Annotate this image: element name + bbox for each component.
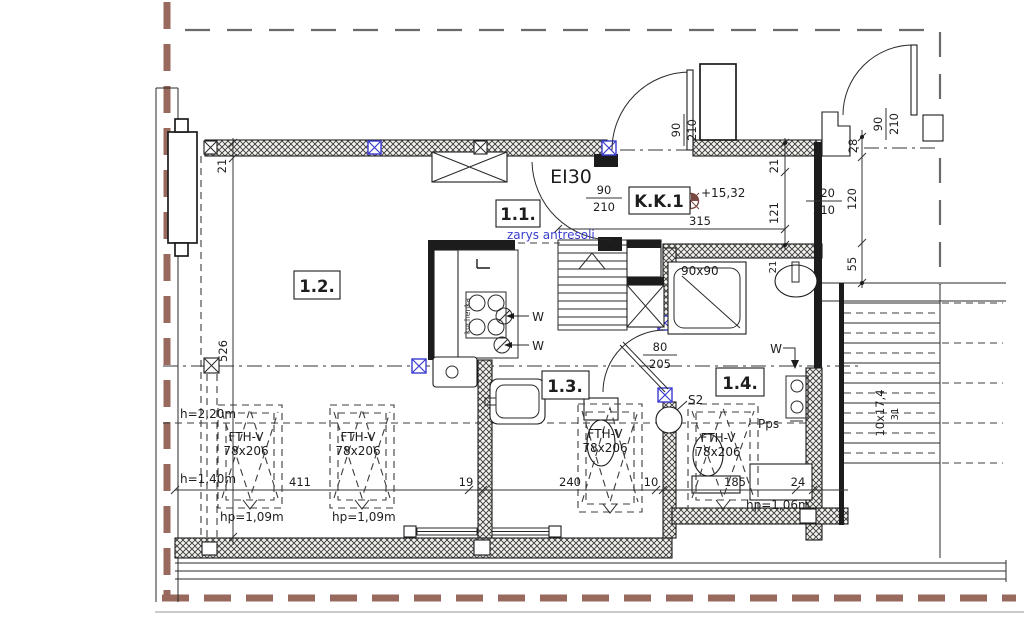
riser-pipes (786, 376, 808, 418)
mezzanine-outline-label: zarys antresoli (507, 228, 595, 242)
dim-526: 526 (216, 340, 230, 362)
window-size: 78x206 (223, 444, 268, 458)
bath-lower-door-height: 205 (649, 357, 671, 371)
sink-drain-mark (477, 259, 490, 268)
hall-door-width: 90 (597, 183, 612, 197)
left-pilaster-tab-bottom (175, 243, 188, 256)
sill-height-label-3: hp=1,06m (746, 498, 810, 512)
entry-right-door-width: 90 (871, 117, 885, 132)
dim-55: 55 (845, 257, 859, 272)
kitchen-top-wall (428, 240, 515, 250)
left-pilaster-tab-top (175, 119, 188, 132)
entry-top-door-width: 90 (669, 123, 683, 138)
dim-315: 315 (689, 214, 711, 228)
top-wall-left (205, 140, 607, 156)
dim-185: 185 (724, 475, 746, 489)
entry-jamb (923, 115, 943, 141)
window-size: 78x206 (695, 445, 740, 459)
flue-cap (627, 240, 661, 248)
door-dim-entry-right: 90 210 (871, 108, 901, 140)
sill-height-label-2: hp=1,09m (332, 510, 396, 524)
floor-plan-drawing: kuchenka (0, 0, 1024, 624)
roof-window-2: FTH-V 78x206 (330, 405, 394, 509)
eaves-lines (175, 560, 1006, 582)
blue-marker-1 (368, 141, 381, 154)
top-wall-right (693, 140, 822, 156)
door-dim-bath-upper: 120 210 (806, 186, 842, 217)
stair-note-2: 31 (890, 408, 901, 421)
bath-lower-door-width: 80 (653, 340, 668, 354)
sink-13 (485, 379, 545, 424)
dim-121: 121 (767, 202, 781, 224)
window-type: FTH-V (701, 431, 737, 445)
stair-dash-extensions (942, 303, 1003, 463)
dim-21-hall: 21 (767, 159, 781, 174)
washbasin (775, 262, 817, 297)
window-type: FTH-V (341, 430, 377, 444)
dim-24: 24 (791, 475, 806, 489)
skylight-box (432, 152, 507, 182)
fire-rating-label: EI30 (550, 166, 592, 188)
dim-19: 19 (459, 475, 474, 489)
window-size: 78x206 (335, 444, 380, 458)
stove: kuchenka (463, 292, 506, 338)
mezzanine-stairs (558, 237, 664, 330)
dim-21-basin: 21 (768, 261, 779, 274)
entry-right-door-leaf (911, 45, 917, 115)
floor-plan-stage: kuchenka (0, 0, 1024, 624)
kitchen-washbasin (433, 357, 477, 387)
sill-height-label-1: hp=1,09m (220, 510, 284, 524)
room-label-1-4: 1.4. (722, 374, 758, 393)
blue-marker-2 (602, 141, 616, 155)
blue-marker-5 (658, 388, 672, 402)
dim-10: 10 (644, 475, 659, 489)
stair-treads (558, 245, 627, 325)
bath-upper-door-height: 210 (813, 203, 835, 217)
dim-21-left: 21 (215, 159, 229, 174)
hall-door-height: 210 (593, 200, 615, 214)
wall-post-2 (474, 540, 490, 555)
left-pilaster (168, 132, 197, 243)
shaft-cap (627, 277, 664, 285)
kitchen-left-wall (428, 243, 434, 360)
dim-411: 411 (289, 475, 311, 489)
level-mark-label: +15,32 (701, 186, 745, 200)
vent-label-2: W (532, 339, 544, 353)
wall-post-1 (202, 542, 217, 555)
kitchen-cabinet (434, 250, 458, 358)
entry-right-door-arc (843, 45, 913, 115)
anchor-box-1 (204, 141, 217, 154)
pps-label: Pps (758, 417, 779, 431)
stair-note-1: 10x17,4 (873, 389, 887, 436)
entry-top-door-height: 210 (685, 119, 699, 141)
landing-lines (822, 283, 1006, 301)
dim-28: 28 (846, 139, 860, 154)
stove-label: kuchenka (463, 298, 472, 334)
vent-outlet-1 (496, 308, 529, 324)
vent-outlet-2 (494, 337, 529, 353)
room-label-1-1: 1.1. (500, 205, 536, 224)
entry-right-door-height: 210 (887, 113, 901, 135)
s2-label: S2 (688, 393, 703, 407)
window-type: FTH-V (588, 427, 624, 441)
vent-label-3: W (770, 342, 782, 356)
anchor-box-2 (474, 141, 487, 154)
shaft-box (627, 285, 664, 327)
dim-120: 120 (845, 188, 859, 210)
chimney-top (700, 64, 736, 140)
window-type: FTH-V (229, 430, 265, 444)
shower-size-label: 90x90 (681, 264, 719, 278)
bath-upper-door-width: 120 (813, 186, 835, 200)
hall-door-stub (594, 154, 618, 167)
room-label-1-2: 1.2. (299, 277, 335, 296)
main-stair-treads (844, 303, 940, 463)
height-140-label: h=1,40m (180, 472, 236, 486)
bath-top-wall (663, 244, 822, 258)
main-staircase (822, 283, 1006, 525)
bottom-wall-left (175, 538, 672, 558)
room-label-kk1: K.K.1 (634, 192, 684, 211)
height-220-label: h=2,20m (180, 407, 236, 421)
plot-boundary (155, 2, 1024, 612)
stair-left-wall (839, 283, 844, 525)
door-dim-entry-top: 90 210 (669, 114, 699, 146)
bath-right-wall (814, 142, 822, 368)
dim-240: 240 (559, 475, 581, 489)
blue-marker-3 (412, 359, 426, 373)
room-label-1-3: 1.3. (547, 377, 583, 396)
window-size: 78x206 (582, 441, 627, 455)
vent-label-1: W (532, 310, 544, 324)
